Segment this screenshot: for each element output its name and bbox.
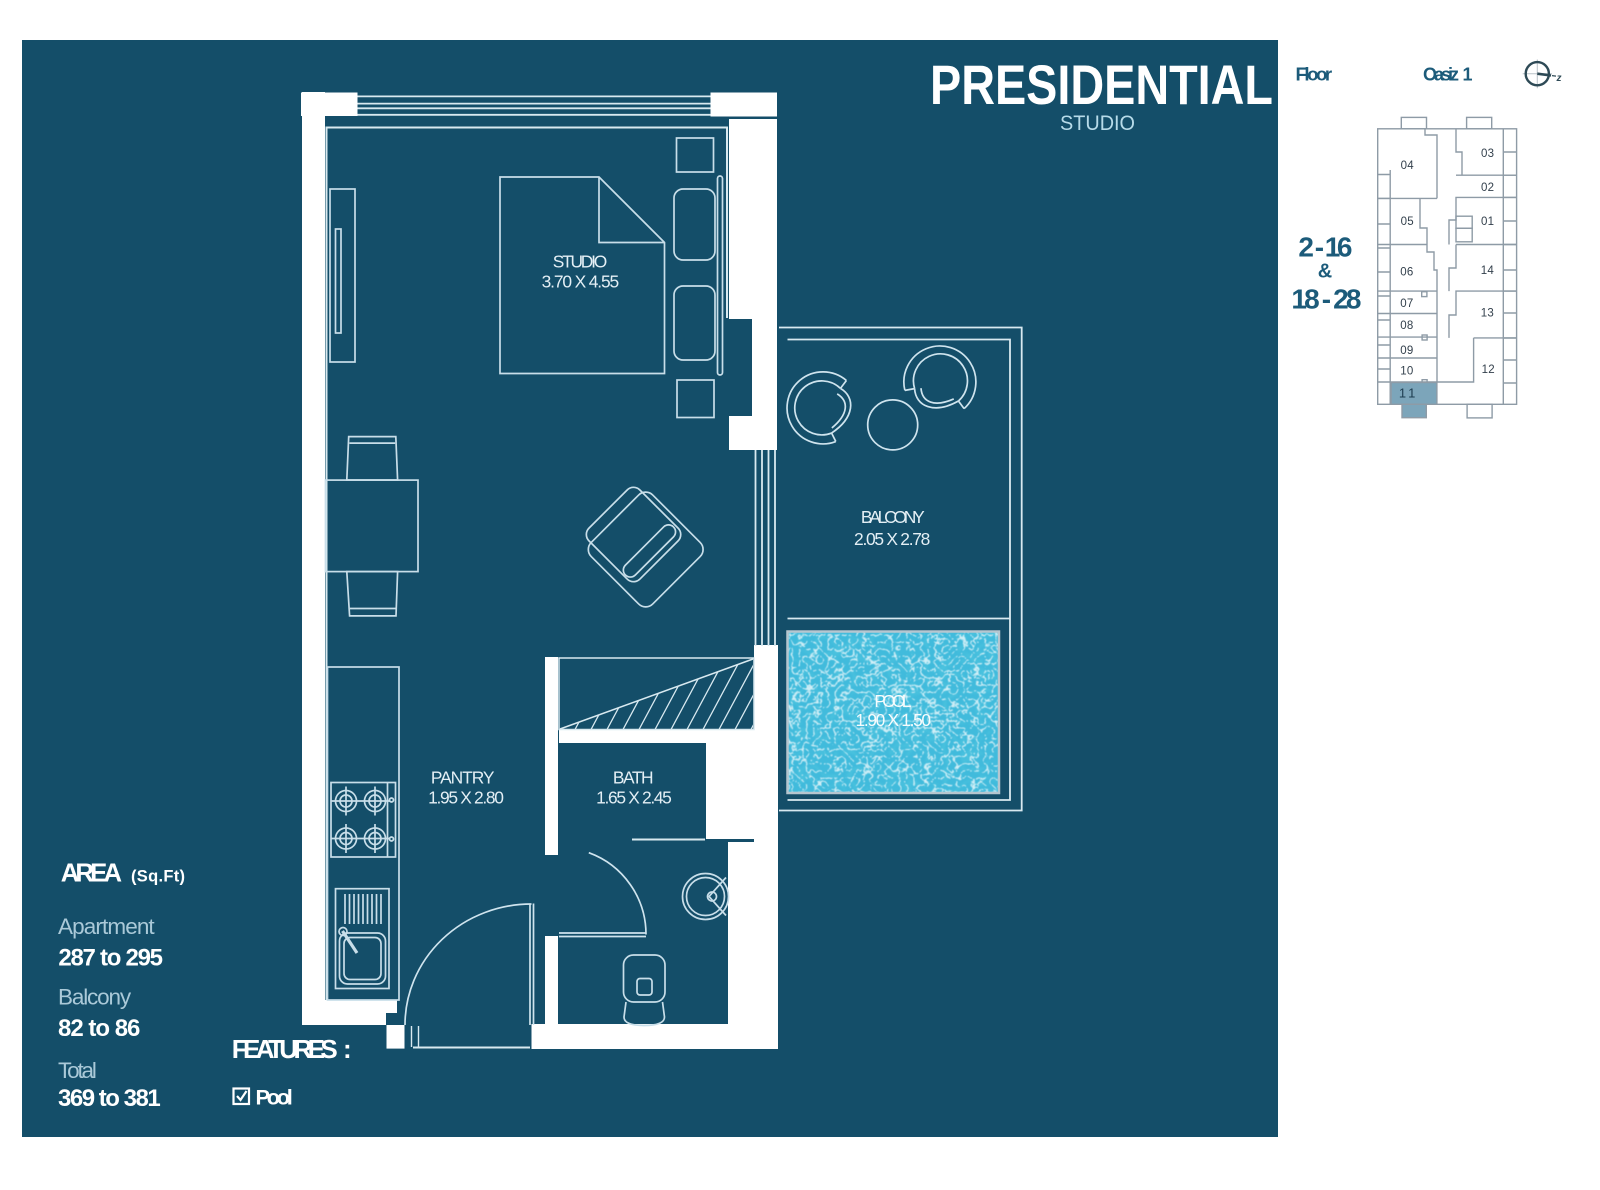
- svg-text:05: 05: [1401, 216, 1414, 228]
- svg-text:Oasiz: Oasiz: [1423, 65, 1459, 85]
- svg-text:Pool: Pool: [256, 1085, 293, 1110]
- svg-text:z: z: [1556, 73, 1562, 84]
- svg-text:06: 06: [1400, 267, 1413, 279]
- svg-text:Total: Total: [58, 1058, 97, 1083]
- svg-text:BALCONY: BALCONY: [861, 507, 925, 527]
- svg-text:11: 11: [1399, 386, 1419, 401]
- svg-text:18 - 28: 18 - 28: [1291, 284, 1361, 315]
- svg-text:Balcony: Balcony: [58, 985, 132, 1010]
- svg-text:1.90 X 1.50: 1.90 X 1.50: [856, 710, 932, 730]
- svg-text:BATH: BATH: [613, 767, 654, 787]
- svg-text:369 to 381: 369 to 381: [58, 1085, 161, 1112]
- svg-text:1: 1: [1463, 65, 1473, 85]
- svg-text:1.65 X 2.45: 1.65 X 2.45: [596, 788, 672, 808]
- svg-text:PANTRY: PANTRY: [431, 767, 495, 787]
- svg-text:82 to 86: 82 to 86: [58, 1015, 140, 1042]
- svg-text:POOL: POOL: [874, 691, 911, 711]
- svg-text:07: 07: [1400, 298, 1413, 310]
- svg-text::: :: [343, 1034, 352, 1064]
- svg-text:3.70 X 4.55: 3.70 X 4.55: [542, 272, 620, 292]
- svg-text:PRESIDENTIAL: PRESIDENTIAL: [930, 54, 1273, 116]
- svg-text:STUDIO: STUDIO: [553, 251, 608, 271]
- svg-text:AREA: AREA: [61, 859, 122, 887]
- svg-text:2.05 X 2.78: 2.05 X 2.78: [854, 529, 930, 549]
- svg-text:10: 10: [1400, 366, 1413, 378]
- svg-text:FEATURES: FEATURES: [232, 1034, 338, 1064]
- svg-text:1.95 X 2.80: 1.95 X 2.80: [428, 788, 504, 808]
- svg-text:&: &: [1318, 261, 1332, 283]
- svg-text:Floor: Floor: [1296, 64, 1333, 85]
- svg-text:14: 14: [1481, 265, 1495, 277]
- svg-text:STUDIO: STUDIO: [1060, 112, 1135, 135]
- svg-text:12: 12: [1482, 364, 1495, 376]
- svg-text:287 to 295: 287 to 295: [58, 945, 163, 972]
- svg-text:2 - 16: 2 - 16: [1298, 232, 1352, 263]
- svg-text:Apartment: Apartment: [58, 914, 155, 939]
- svg-text:02: 02: [1481, 182, 1494, 194]
- svg-text:13: 13: [1481, 308, 1494, 320]
- svg-text:01: 01: [1481, 216, 1494, 228]
- svg-text:08: 08: [1400, 320, 1413, 332]
- svg-text:03: 03: [1481, 148, 1494, 160]
- svg-text:04: 04: [1401, 160, 1415, 172]
- svg-text:(Sq.Ft): (Sq.Ft): [131, 867, 185, 885]
- svg-text:09: 09: [1400, 345, 1413, 357]
